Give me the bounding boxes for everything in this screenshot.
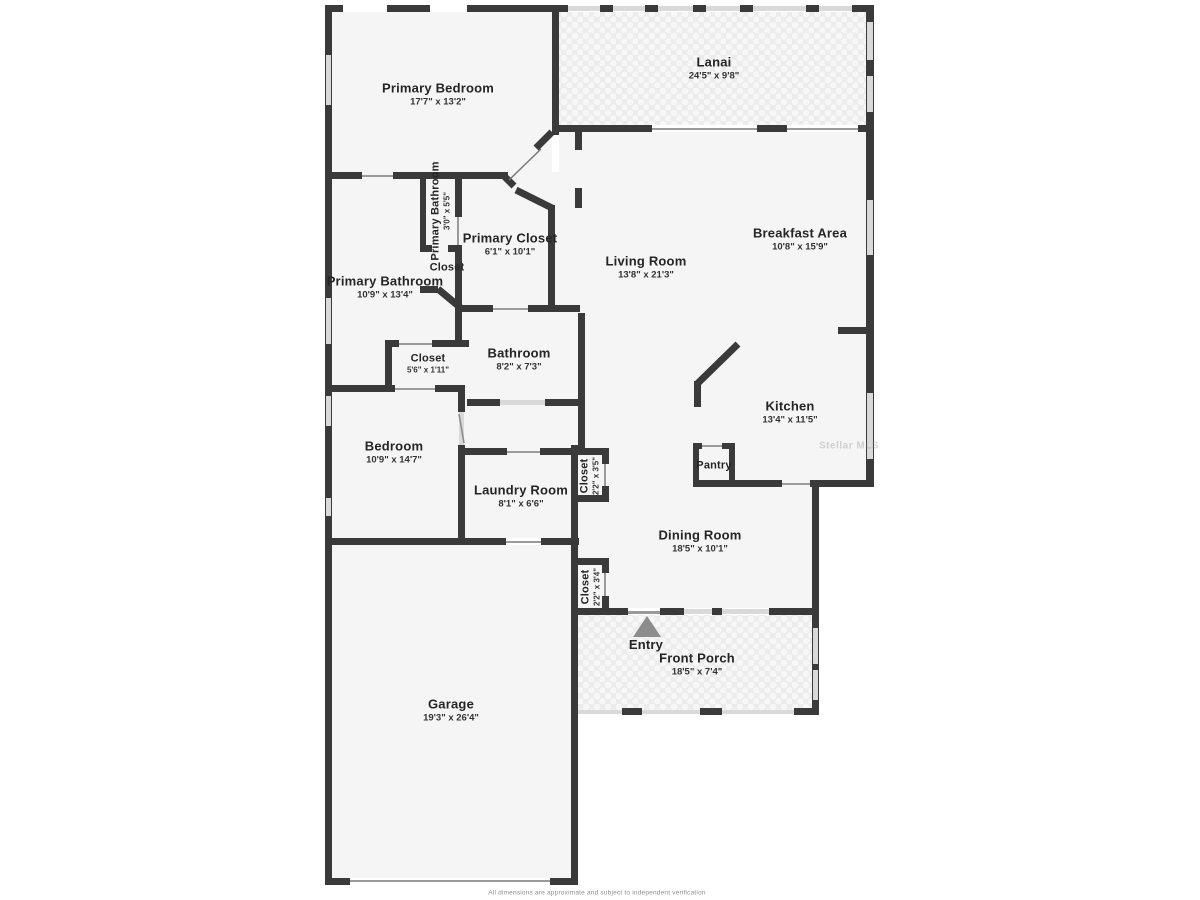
disclaimer-text: All dimensions are approximate and subje… xyxy=(488,890,705,897)
floorplan-drawing xyxy=(0,0,1200,900)
floorplan-page: Primary Bedroom 17'7" x 13'2" Lanai 24'5… xyxy=(0,0,1200,900)
watermark: Stellar MLS xyxy=(819,441,879,452)
floor-fills xyxy=(331,12,866,878)
